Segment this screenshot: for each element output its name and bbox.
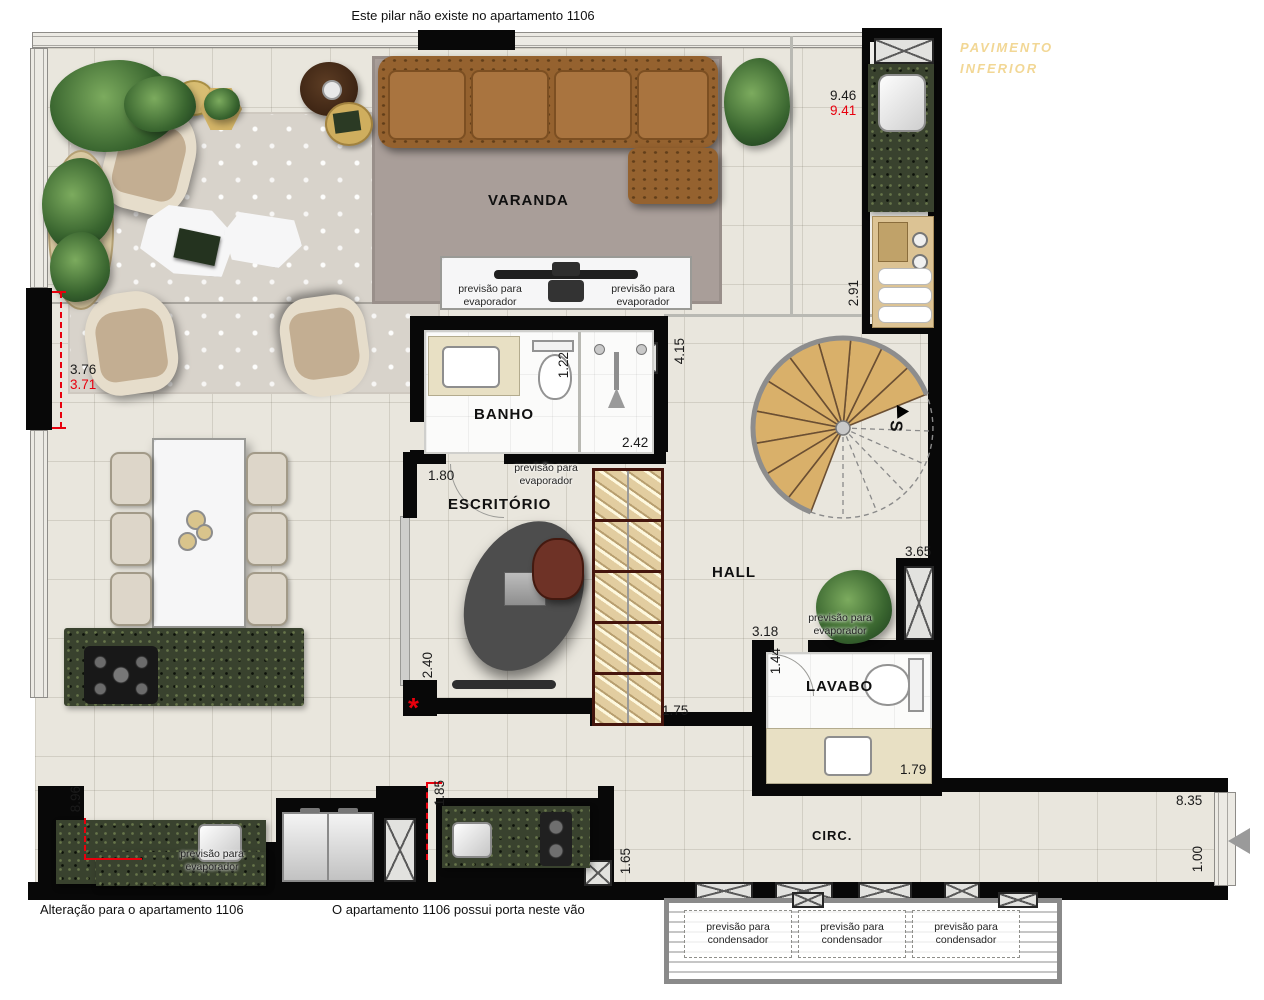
door-note: O apartamento 1106 possui porta neste vã… (332, 902, 585, 917)
wall-office-bottom (403, 698, 595, 714)
banho-sink (442, 346, 500, 388)
condenser-vent-2 (998, 892, 1038, 908)
dim-2-40: 2.40 (420, 652, 435, 678)
fridge-door-split (327, 812, 329, 882)
dim-3-71: 3.71 (70, 377, 96, 392)
dim-1-79: 1.79 (900, 762, 926, 777)
fridge-handle-2 (338, 808, 358, 813)
pillar-note: Este pilar não existe no apartamento 110… (351, 8, 594, 23)
dim-9-41: 9.41 (830, 103, 856, 118)
tv-box (548, 280, 584, 302)
shower-pipe (614, 352, 619, 390)
alteration-note: Alteração para o apartamento 1106 (40, 902, 244, 917)
dining-chair-3 (110, 572, 152, 626)
varanda-plant (724, 58, 790, 146)
condenser-label-2: previsão para condensador (799, 921, 905, 946)
office-chair (532, 538, 584, 600)
alteration-dash-kitchen (84, 818, 86, 860)
evaporator-label-5: previsão para evaporador (165, 848, 259, 873)
cooktop (84, 646, 158, 704)
lower-floor-line1: PAVIMENTO (960, 38, 1053, 59)
dim-8-35: 8.35 (1176, 793, 1202, 808)
entry-arrow-icon (1228, 828, 1250, 854)
dim-1-80: 1.80 (428, 468, 454, 483)
wall-corridor-top (940, 778, 1228, 792)
laundry-vent-shaft (874, 38, 934, 64)
condenser-label-3: previsão para condensador (913, 921, 1019, 946)
laundry-sink (878, 74, 926, 132)
tv-mount (552, 262, 580, 276)
towel-2 (878, 287, 932, 304)
kitchen-shaft-left (384, 818, 416, 882)
left-window-upper (30, 48, 48, 288)
pillar (418, 30, 515, 50)
condenser-slot-3: previsão para condensador (912, 910, 1020, 958)
terrace-plant-2 (124, 76, 196, 132)
lower-floor-line2: INFERIOR (960, 59, 1053, 80)
fridge-handle-1 (300, 808, 320, 813)
office-shelf (452, 680, 556, 689)
dim-1-65: 1.65 (618, 848, 633, 874)
evaporator-label-2: previsão para evaporador (596, 283, 690, 308)
lower-floor-label: PAVIMENTO INFERIOR (960, 38, 1053, 80)
condenser-slot-2: previsão para condensador (798, 910, 906, 958)
wall-lavabo-bottom (752, 782, 942, 796)
condenser-label-1: previsão para condensador (685, 921, 791, 946)
dim-8-96: 8.96 (68, 786, 83, 812)
round-table-tray (322, 80, 342, 100)
dining-chair-4 (246, 452, 288, 506)
dim-1-85: 1.85 (432, 780, 447, 806)
dim-1-75: 1.75 (662, 703, 688, 718)
dim-1-22: 1.22 (556, 352, 571, 378)
room-label-escritorio: ESCRITÓRIO (448, 496, 551, 513)
dim-2-42: 2.42 (622, 435, 648, 450)
dim-1-44: 1.44 (768, 648, 783, 674)
varanda-glass-partition (790, 36, 793, 314)
alteration-tick-1 (52, 291, 66, 293)
towel-1 (878, 268, 932, 285)
left-window-lower (30, 430, 48, 698)
room-label-lavabo: LAVABO (806, 678, 873, 695)
room-label-circ: CIRC. (812, 828, 852, 843)
table-plate-2 (196, 524, 213, 541)
dining-chair-5 (246, 512, 288, 566)
office-sliding-door (400, 516, 410, 686)
wine-rack (592, 468, 664, 726)
shower-screen (578, 332, 581, 452)
kitchen-sink-right (452, 822, 492, 858)
dim-4-15: 4.15 (672, 338, 687, 364)
dining-chair-6 (246, 572, 288, 626)
wall-left-pier (26, 288, 52, 430)
alteration-dash-door (426, 782, 428, 860)
laundry-basket (878, 222, 908, 262)
dim-9-46: 9.46 (830, 88, 856, 103)
dim-3-65: 3.65 (905, 544, 931, 559)
shower-knob-1 (594, 344, 605, 355)
evaporator-label-4: previsão para evaporador (793, 612, 887, 637)
kitchen-stove (540, 812, 572, 866)
shower-knob-2 (636, 344, 647, 355)
table-plant (204, 88, 240, 120)
magazine (333, 110, 362, 133)
towel-3 (878, 306, 932, 323)
dim-1-00: 1.00 (1190, 846, 1205, 872)
dining-chair-1 (110, 452, 152, 506)
lavabo-toilet-tank (908, 658, 924, 712)
condenser-vent-1 (792, 892, 824, 908)
condenser-slot-1: previsão para condensador (684, 910, 792, 958)
floor-plan-canvas: S previsão para condensador previsão par… (0, 0, 1264, 1000)
spiral-staircase (746, 334, 936, 524)
evaporator-label-3: previsão para evaporador (499, 462, 593, 487)
lavabo-sink (824, 736, 872, 776)
evaporator-label-1: previsão para evaporador (443, 283, 537, 308)
sofa (378, 56, 718, 148)
stair-direction-label: S (885, 420, 905, 432)
dim-2-91: 2.91 (846, 280, 861, 306)
table-plate-3 (178, 532, 197, 551)
alteration-dash-left (60, 292, 62, 428)
alteration-tick-2 (52, 427, 66, 429)
dim-3-76: 3.76 (70, 362, 96, 377)
room-label-varanda: VARANDA (488, 192, 569, 209)
room-label-banho: BANHO (474, 406, 534, 423)
dining-chair-2 (110, 512, 152, 566)
alteration-tick-3 (84, 858, 142, 860)
banho-toilet-tank (532, 340, 574, 352)
room-label-hall: HALL (712, 564, 756, 581)
laundry-knob-1 (912, 232, 928, 248)
dim-3-18: 3.18 (752, 624, 778, 639)
wall-office-left-a (403, 452, 417, 518)
alteration-asterisk: * (408, 692, 419, 724)
hall-shaft (904, 566, 934, 640)
wall-lavabo-left (752, 648, 766, 796)
ottoman (628, 148, 718, 204)
